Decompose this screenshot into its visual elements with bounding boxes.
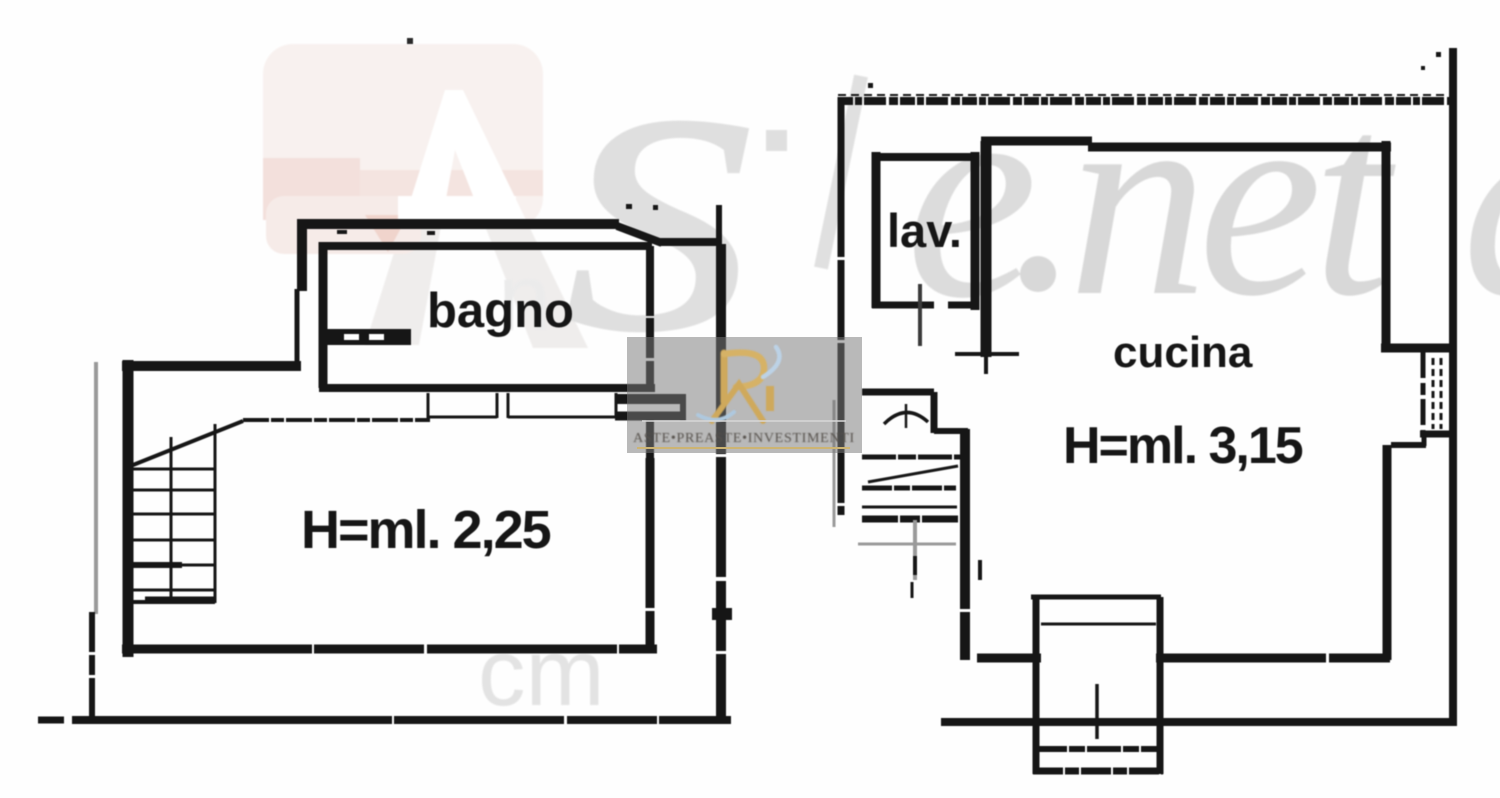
svg-text:lav.: lav. [887,204,962,257]
svg-text:ASTE•PREASTE•INVESTIMENTI: ASTE•PREASTE•INVESTIMENTI [633,431,855,446]
svg-text:H=ml. 2,25: H=ml. 2,25 [301,500,551,560]
svg-text:net: net [1068,43,1400,354]
svg-text:cm: cm [478,620,605,726]
svg-text:cucina: cucina [1113,328,1253,377]
svg-text:a: a [1462,43,1500,354]
svg-text:bagno: bagno [427,284,574,338]
svg-text:H=ml. 3,15: H=ml. 3,15 [1063,417,1303,475]
